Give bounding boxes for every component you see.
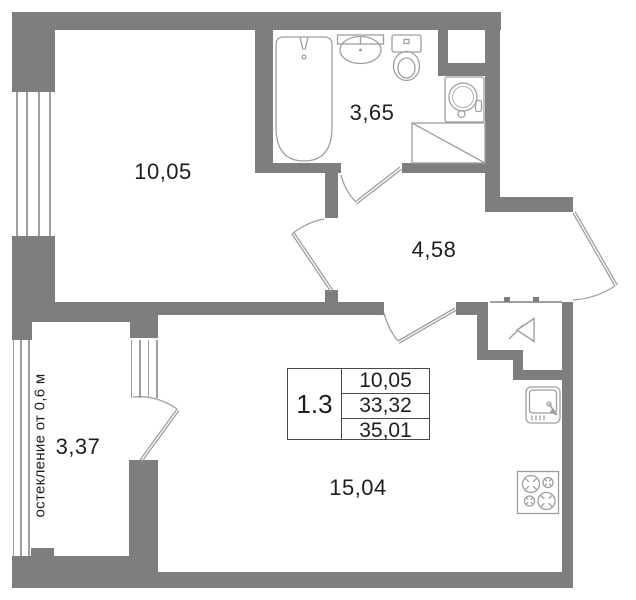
fixtures-layer — [0, 0, 636, 600]
stove — [518, 472, 559, 514]
washbasin — [338, 35, 384, 64]
unit-number: 1.3 — [288, 369, 342, 439]
entrance-arrow-icon — [509, 319, 534, 342]
room-label-hallway: 4,58 — [374, 237, 494, 263]
bathtub — [276, 37, 332, 161]
wardrobe — [412, 123, 485, 163]
area-value-row: 33,32 — [342, 394, 429, 419]
room-label-bedroom: 10,05 — [103, 159, 223, 185]
glazing-note: остекление от 0,6 м — [32, 366, 49, 526]
kitchen-sink — [526, 387, 560, 423]
area-value-row: 10,05 — [342, 369, 429, 394]
area-table: 1.3 10,05 33,32 35,01 — [287, 368, 430, 440]
entrance-door-swing — [573, 212, 617, 300]
living-room-door-swing — [384, 308, 456, 343]
area-value-row: 35,01 — [342, 419, 429, 443]
bathroom-door-swing — [341, 167, 402, 204]
bedroom-door-swing — [292, 219, 333, 292]
washing-machine — [445, 77, 484, 122]
area-values: 10,05 33,32 35,01 — [342, 369, 429, 439]
room-label-living-kitchen: 15,04 — [298, 475, 418, 501]
toilet — [392, 35, 421, 81]
room-label-bathroom: 3,65 — [312, 100, 432, 126]
balcony-door-swing — [133, 397, 179, 462]
floor-plan: 10,05 3,65 4,58 3,37 15,04 остекление от… — [0, 0, 636, 600]
